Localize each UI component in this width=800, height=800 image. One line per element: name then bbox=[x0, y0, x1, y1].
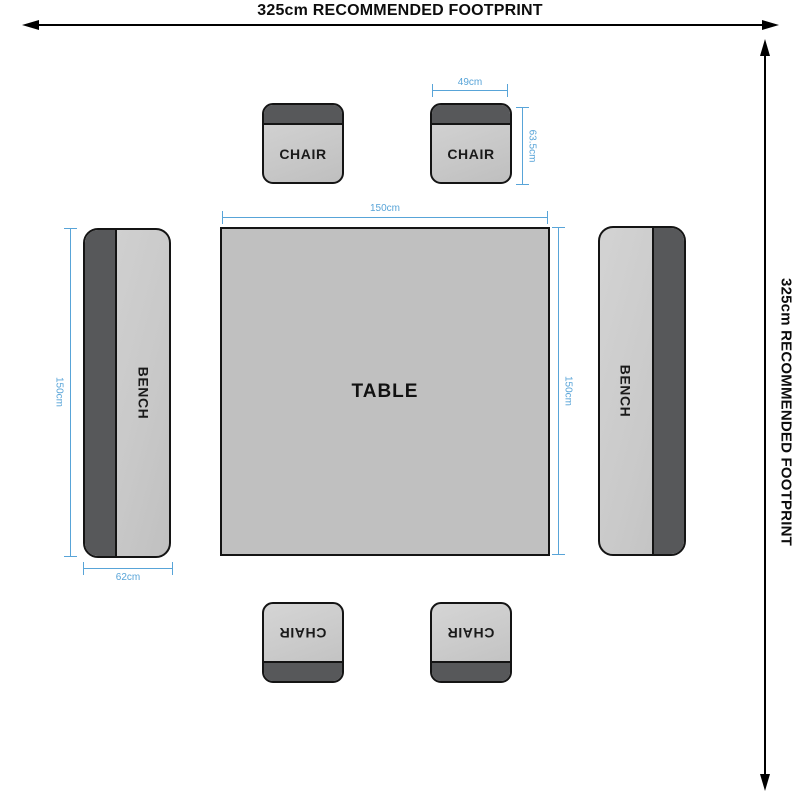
dim-tick bbox=[172, 562, 173, 575]
dim-bench-length-line bbox=[70, 228, 71, 557]
arrow-left-icon bbox=[22, 20, 39, 30]
dim-chair-height-label: 63.5cm bbox=[527, 130, 538, 163]
dim-chair-width-label: 49cm bbox=[458, 77, 482, 88]
chair-seat: CHAIR bbox=[432, 604, 510, 661]
chair-backrest bbox=[264, 105, 342, 125]
dim-tick bbox=[222, 211, 223, 224]
bench-seat: BENCH bbox=[599, 228, 652, 554]
chair-bottom-right: CHAIR bbox=[430, 602, 512, 683]
chair-backrest bbox=[432, 105, 510, 125]
chair-seat: CHAIR bbox=[264, 125, 342, 182]
dim-table-height-line bbox=[558, 227, 559, 555]
dim-tick bbox=[552, 554, 565, 555]
dim-chair-width-line bbox=[432, 90, 508, 91]
footprint-height-label: 325cm RECOMMENDED FOOTPRINT bbox=[778, 278, 795, 546]
chair-label: CHAIR bbox=[447, 625, 494, 641]
arrow-up-icon bbox=[760, 39, 770, 56]
dim-tick bbox=[83, 562, 84, 575]
bench-right: BENCH bbox=[598, 226, 686, 556]
dim-tick bbox=[64, 228, 77, 229]
table-label: TABLE bbox=[352, 381, 419, 403]
chair-top-left: CHAIR bbox=[262, 103, 344, 184]
chair-backrest bbox=[264, 661, 342, 681]
dim-tick bbox=[516, 107, 529, 108]
chair-label: CHAIR bbox=[447, 146, 494, 162]
bench-label: BENCH bbox=[135, 367, 151, 420]
bench-backrest bbox=[652, 228, 684, 554]
chair-seat: CHAIR bbox=[264, 604, 342, 661]
dim-bench-width-line bbox=[83, 568, 173, 569]
dim-tick bbox=[552, 227, 565, 228]
dim-table-height-label: 150cm bbox=[563, 376, 574, 406]
chair-backrest bbox=[432, 661, 510, 681]
arrow-right-icon bbox=[762, 20, 779, 30]
dim-bench-width-label: 62cm bbox=[116, 572, 140, 583]
chair-seat: CHAIR bbox=[432, 125, 510, 182]
bench-backrest bbox=[85, 230, 117, 556]
arrow-down-icon bbox=[760, 774, 770, 791]
dim-tick bbox=[547, 211, 548, 224]
footprint-height-arrow bbox=[764, 55, 766, 775]
dim-bench-length-label: 150cm bbox=[54, 377, 65, 407]
footprint-width-arrow bbox=[37, 24, 764, 26]
dim-tick bbox=[516, 184, 529, 185]
bench-seat: BENCH bbox=[117, 230, 170, 556]
table-shape: TABLE bbox=[220, 227, 550, 556]
bench-label: BENCH bbox=[618, 365, 634, 418]
footprint-diagram: 325cm RECOMMENDED FOOTPRINT 325cm RECOMM… bbox=[0, 0, 800, 800]
dim-table-width-label: 150cm bbox=[370, 203, 400, 214]
dim-tick bbox=[507, 84, 508, 97]
dim-tick bbox=[64, 556, 77, 557]
bench-left: BENCH bbox=[83, 228, 171, 558]
dim-tick bbox=[432, 84, 433, 97]
dim-table-width-line bbox=[222, 217, 548, 218]
chair-label: CHAIR bbox=[279, 625, 326, 641]
chair-top-right: CHAIR bbox=[430, 103, 512, 184]
chair-bottom-left: CHAIR bbox=[262, 602, 344, 683]
dim-chair-height-line bbox=[522, 107, 523, 185]
chair-label: CHAIR bbox=[279, 146, 326, 162]
footprint-width-label: 325cm RECOMMENDED FOOTPRINT bbox=[0, 2, 800, 20]
